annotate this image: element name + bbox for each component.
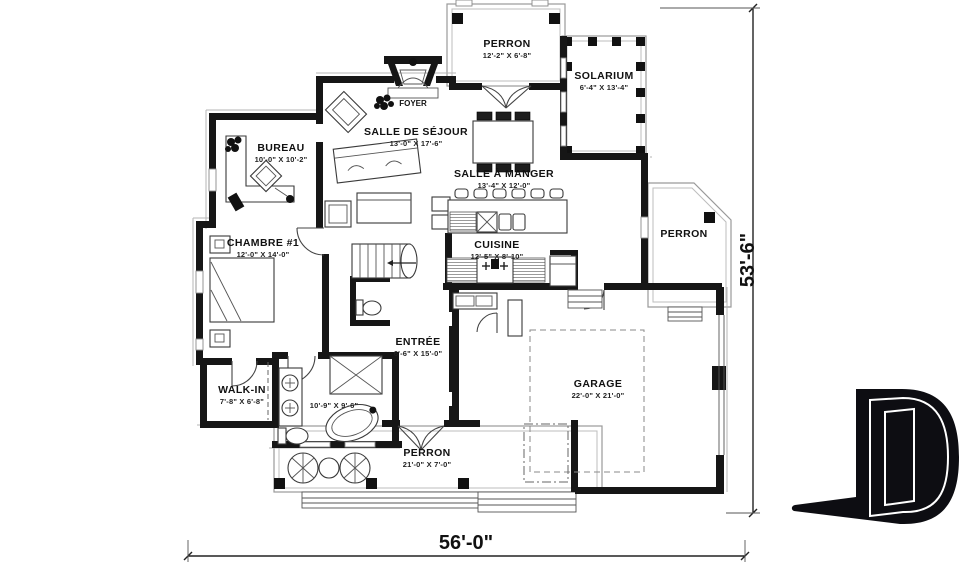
living-room-furniture [325, 91, 450, 229]
walkin-door [232, 361, 257, 386]
sink [513, 214, 525, 230]
label-manger: SALLE À MANGER [454, 167, 554, 180]
garage-steps [568, 290, 602, 308]
label-entree: ENTRÉE [396, 335, 441, 348]
side-table [432, 215, 450, 229]
dims-cuisine: 12'-5" X 8'-10" [471, 252, 524, 261]
label-sejour: SALLE DE SÉJOUR [364, 125, 468, 138]
refrigerator [550, 256, 576, 286]
dimension-bottom: 56'-0" [184, 532, 749, 562]
label-garage: GARAGE [574, 378, 623, 390]
label-cuisine: CUISINE [474, 239, 519, 251]
porch-post [549, 13, 560, 24]
toilet [278, 428, 308, 444]
label-chambre: CHAMBRE #1 [227, 237, 299, 249]
bar-stools [455, 189, 563, 198]
chimney-flue [409, 58, 417, 66]
dining-table [473, 121, 533, 163]
porch-post [274, 478, 285, 489]
porch-post [704, 212, 715, 223]
entry-steps [478, 492, 576, 512]
dims-garage: 22'-0" X 21'-0" [572, 391, 625, 400]
label-perron-bottom: PERRON [403, 447, 450, 459]
desk-lamp [286, 195, 294, 203]
porch-post [452, 13, 463, 24]
label-solarium: SOLARIUM [574, 70, 633, 82]
dims-chambre: 12'-0" X 14'-0" [237, 250, 290, 259]
porch-post [366, 478, 377, 489]
label-perron-top: PERRON [483, 38, 530, 50]
cabinet [508, 300, 522, 336]
dims-sejour: 13'-0" X 17'-6" [390, 139, 443, 148]
plant [374, 95, 394, 111]
powder-toilet [356, 300, 381, 315]
dims-perron-top: 12'-2" X 6'-8" [483, 51, 532, 60]
loveseat [357, 193, 411, 223]
staircase [352, 244, 417, 278]
label-walkin: WALK-IN [218, 384, 266, 396]
porch-table [319, 458, 339, 478]
bottom-porch-deck [274, 426, 602, 492]
overall-height-dimension: 53'-6" [737, 233, 759, 287]
dining-furniture [473, 112, 533, 172]
dims-walkin: 7'-8" X 6'-8" [220, 397, 264, 406]
label-bureau: BUREAU [257, 142, 304, 154]
mudroom-door [477, 313, 497, 333]
nightstand [210, 330, 230, 347]
mudroom-bench [453, 293, 522, 336]
floor-plan: 56'-0" 53'-6" PERRON 12'-2" X 6'-8" SOLA… [0, 0, 960, 569]
bedroom-door [297, 228, 324, 255]
dims-bureau: 10'-0" X 10'-2" [255, 155, 308, 164]
sink [499, 214, 511, 230]
dims-entree: 6'-6" X 15'-0" [394, 349, 443, 358]
label-foyer: FOYER [399, 99, 427, 108]
dims-solarium: 6'-4" X 13'-4" [580, 83, 629, 92]
bed [210, 258, 274, 322]
dims-bain: 10'-9" X 9'-6" [310, 401, 359, 410]
brand-logo [792, 389, 959, 524]
side-table [432, 197, 450, 211]
right-porch-steps [668, 307, 702, 321]
porch-furniture [288, 453, 370, 483]
porch-post [458, 478, 469, 489]
armchair [325, 91, 366, 132]
dims-manger: 13'-4" X 12'-0" [478, 181, 531, 190]
label-perron-right: PERRON [660, 228, 707, 240]
kitchen-fixtures [447, 189, 576, 286]
overall-width-dimension: 56'-0" [439, 532, 493, 554]
dims-perron-bottom: 21'-0" X 7'-0" [403, 460, 452, 469]
solarium-deck [562, 36, 646, 156]
